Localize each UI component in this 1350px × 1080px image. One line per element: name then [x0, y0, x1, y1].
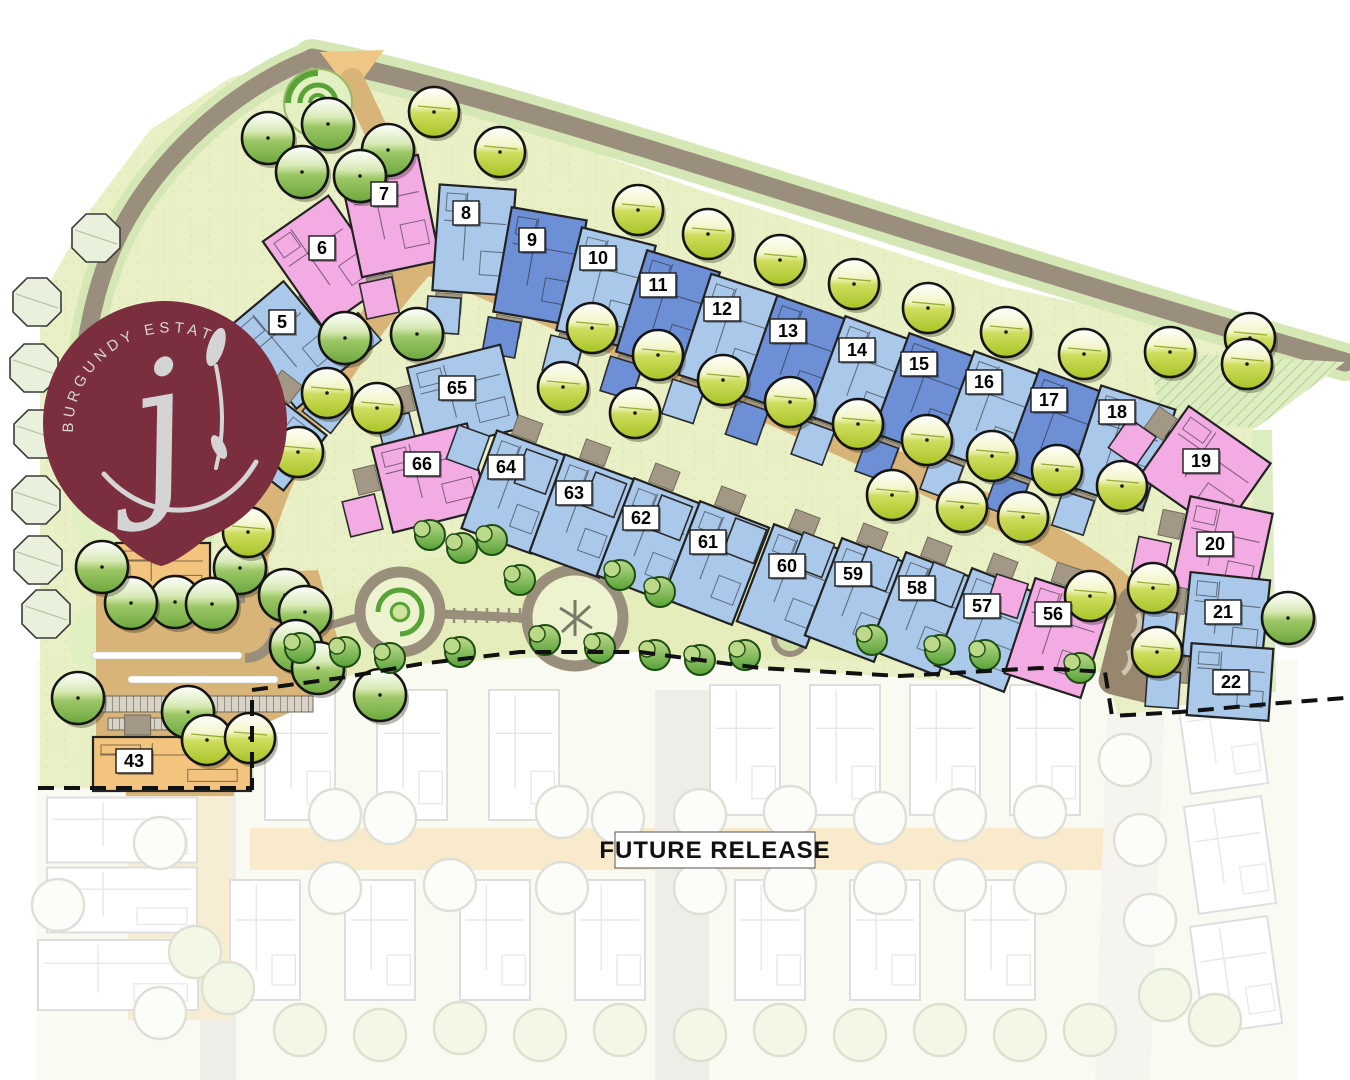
svg-text:60: 60	[777, 556, 797, 576]
tree-icon	[12, 476, 60, 524]
faded-tree-icon	[1064, 1004, 1116, 1056]
faded-tree-icon	[134, 987, 186, 1039]
lot-label-65[interactable]: 65	[439, 376, 477, 402]
faded-tree-icon	[1014, 862, 1066, 914]
faded-tree-icon	[274, 1004, 326, 1056]
faded-tree-icon	[1139, 969, 1191, 1021]
lot-label-9[interactable]: 9	[519, 228, 547, 254]
svg-text:64: 64	[496, 457, 516, 477]
faded-tree-icon	[1124, 894, 1176, 946]
faded-tree-icon	[834, 1009, 886, 1061]
faded-tree-icon	[1189, 994, 1241, 1046]
lot-label-8[interactable]: 8	[453, 201, 481, 227]
svg-text:56: 56	[1043, 604, 1063, 624]
svg-text:62: 62	[631, 508, 651, 528]
faded-tree-icon	[854, 792, 906, 844]
lot-label-6[interactable]: 6	[309, 236, 337, 262]
svg-text:FUTURE RELEASE: FUTURE RELEASE	[599, 837, 830, 864]
svg-text:5: 5	[277, 312, 287, 332]
faded-tree-icon	[674, 862, 726, 914]
lot-label-15[interactable]: 15	[901, 352, 939, 378]
svg-text:11: 11	[648, 275, 667, 295]
faded-tree-icon	[514, 1009, 566, 1061]
faded-tree-icon	[934, 789, 986, 841]
lot-label-61[interactable]: 61	[690, 530, 728, 556]
svg-text:18: 18	[1107, 402, 1127, 422]
lot-label-12[interactable]: 12	[704, 297, 742, 323]
faded-tree-icon	[354, 1009, 406, 1061]
faded-tree-icon	[364, 792, 416, 844]
lot-label-18[interactable]: 18	[1099, 400, 1137, 426]
svg-text:9: 9	[527, 230, 537, 250]
faded-tree-icon	[854, 862, 906, 914]
faded-tree-icon	[914, 1004, 966, 1056]
faded-tree-icon	[1014, 786, 1066, 838]
svg-text:22: 22	[1221, 672, 1241, 692]
faded-tree-icon	[536, 862, 588, 914]
svg-text:61: 61	[698, 532, 718, 552]
svg-text:59: 59	[843, 564, 863, 584]
lot-label-17[interactable]: 17	[1031, 388, 1069, 414]
faded-house	[1184, 796, 1276, 914]
svg-text:57: 57	[972, 596, 992, 616]
lot-label-58[interactable]: 58	[899, 576, 937, 602]
lot-label-63[interactable]: 63	[556, 481, 594, 507]
svg-text:8: 8	[461, 203, 471, 223]
svg-text:66: 66	[412, 454, 432, 474]
lot-label-66[interactable]: 66	[404, 452, 442, 478]
lot-label-60[interactable]: 60	[769, 554, 807, 580]
faded-tree-icon	[994, 1009, 1046, 1061]
lot-label-59[interactable]: 59	[835, 562, 873, 588]
svg-text:14: 14	[847, 340, 867, 360]
lot-label-21[interactable]: 21	[1205, 600, 1243, 626]
site-plan-canvas: 5678910111213141516171819202122656664636…	[0, 0, 1350, 1080]
faded-tree-icon	[1099, 734, 1151, 786]
svg-text:13: 13	[778, 321, 798, 341]
faded-tree-icon	[934, 859, 986, 911]
lot-label-13[interactable]: 13	[770, 319, 808, 345]
faded-tree-icon	[594, 1004, 646, 1056]
svg-text:12: 12	[712, 299, 732, 319]
tree-icon	[72, 214, 120, 262]
faded-tree-icon	[32, 879, 84, 931]
faded-tree-icon	[1114, 814, 1166, 866]
road-marking	[92, 652, 242, 659]
svg-text:65: 65	[447, 378, 467, 398]
faded-tree-icon	[536, 786, 588, 838]
lot-label-11[interactable]: 11	[640, 273, 678, 299]
svg-text:10: 10	[588, 248, 608, 268]
tree-icon	[14, 536, 62, 584]
faded-tree-icon	[424, 859, 476, 911]
faded-tree-icon	[764, 786, 816, 838]
svg-text:16: 16	[974, 372, 994, 392]
parking-pad	[359, 277, 399, 319]
lot-label-43[interactable]: 43	[116, 749, 154, 775]
lot-label-19[interactable]: 19	[1183, 449, 1221, 475]
tree-icon	[22, 590, 70, 638]
site-plan: BURGUNDY ESTATE 567891011121314151617181…	[0, 0, 1350, 1080]
svg-text:17: 17	[1039, 390, 1059, 410]
faded-tree-icon	[434, 1002, 486, 1054]
lot-label-57[interactable]: 57	[964, 594, 1002, 620]
tree-icon	[13, 278, 61, 326]
road-marking	[128, 676, 278, 683]
lot-label-10[interactable]: 10	[580, 246, 618, 272]
svg-text:63: 63	[564, 483, 584, 503]
svg-text:58: 58	[907, 578, 927, 598]
lot-label-5[interactable]: 5	[269, 310, 297, 336]
lot-label-62[interactable]: 62	[623, 506, 661, 532]
faded-tree-icon	[202, 962, 254, 1014]
lot-label-14[interactable]: 14	[839, 338, 877, 364]
lot-label-22[interactable]: 22	[1213, 670, 1251, 696]
lot-label-7[interactable]: 7	[371, 182, 399, 208]
lot-label-56[interactable]: 56	[1035, 602, 1073, 628]
svg-text:7: 7	[379, 184, 389, 204]
faded-tree-icon	[134, 817, 186, 869]
svg-text:15: 15	[909, 354, 929, 374]
lot-label-20[interactable]: 20	[1197, 532, 1235, 558]
faded-tree-icon	[309, 789, 361, 841]
faded-tree-icon	[674, 1009, 726, 1061]
svg-text:19: 19	[1191, 451, 1211, 471]
svg-text:43: 43	[124, 751, 144, 771]
lot-label-64[interactable]: 64	[488, 455, 526, 481]
svg-text:6: 6	[317, 238, 327, 258]
site-plan-svg: 5678910111213141516171819202122656664636…	[0, 0, 1350, 1080]
future-release-label: FUTURE RELEASE	[599, 832, 830, 868]
svg-text:21: 21	[1213, 602, 1233, 622]
faded-tree-icon	[754, 1004, 806, 1056]
lot-label-16[interactable]: 16	[966, 370, 1004, 396]
svg-text:20: 20	[1205, 534, 1225, 554]
faded-tree-icon	[309, 862, 361, 914]
